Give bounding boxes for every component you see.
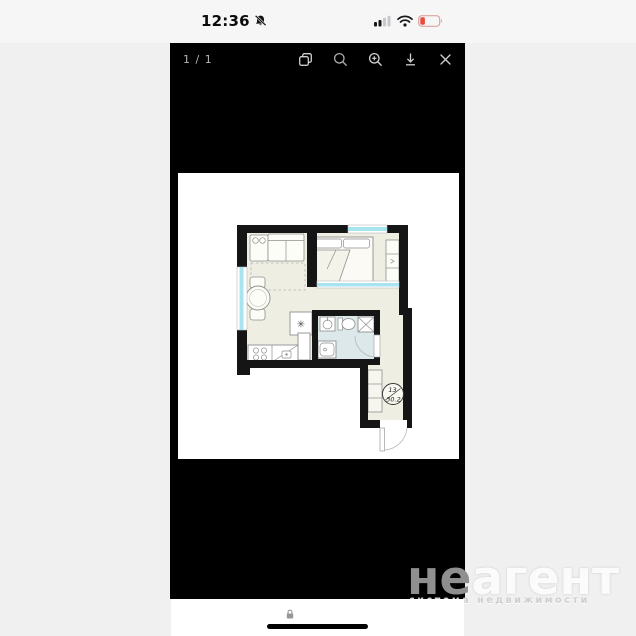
padlock-icon[interactable] xyxy=(285,605,295,624)
floor-plan-image: ✳ xyxy=(178,173,459,459)
screen: 12:36 xyxy=(0,0,636,636)
close-icon[interactable] xyxy=(437,51,454,68)
wifi-icon xyxy=(397,12,413,31)
unit-number: 13 xyxy=(388,386,396,394)
viewer-toolbar: 1 / 1 xyxy=(170,43,465,75)
cell-signal-icon xyxy=(374,12,392,31)
status-bar: 12:36 xyxy=(0,0,636,43)
battery-low-icon xyxy=(418,12,443,31)
browser-bottom-bar xyxy=(171,599,464,636)
floor-plan-drawing: ✳ xyxy=(178,173,459,459)
clock: 12:36 xyxy=(201,12,250,30)
unit-label: 13 30.2 xyxy=(383,384,404,405)
home-indicator[interactable] xyxy=(267,624,368,629)
zoom-in-icon[interactable] xyxy=(367,51,384,68)
status-bar-content: 12:36 xyxy=(170,8,465,34)
unit-area: 30.2 xyxy=(386,396,400,404)
pages-icon[interactable] xyxy=(297,51,314,68)
bell-slash-icon xyxy=(254,12,267,31)
zoom-out-icon[interactable] xyxy=(332,51,349,68)
download-icon[interactable] xyxy=(402,51,419,68)
image-viewer: 1 / 1 xyxy=(170,43,465,599)
fridge-symbol: ✳ xyxy=(297,320,305,331)
watermark-brand-suffix: агент xyxy=(471,551,619,606)
page-indicator: 1 / 1 xyxy=(183,53,213,66)
